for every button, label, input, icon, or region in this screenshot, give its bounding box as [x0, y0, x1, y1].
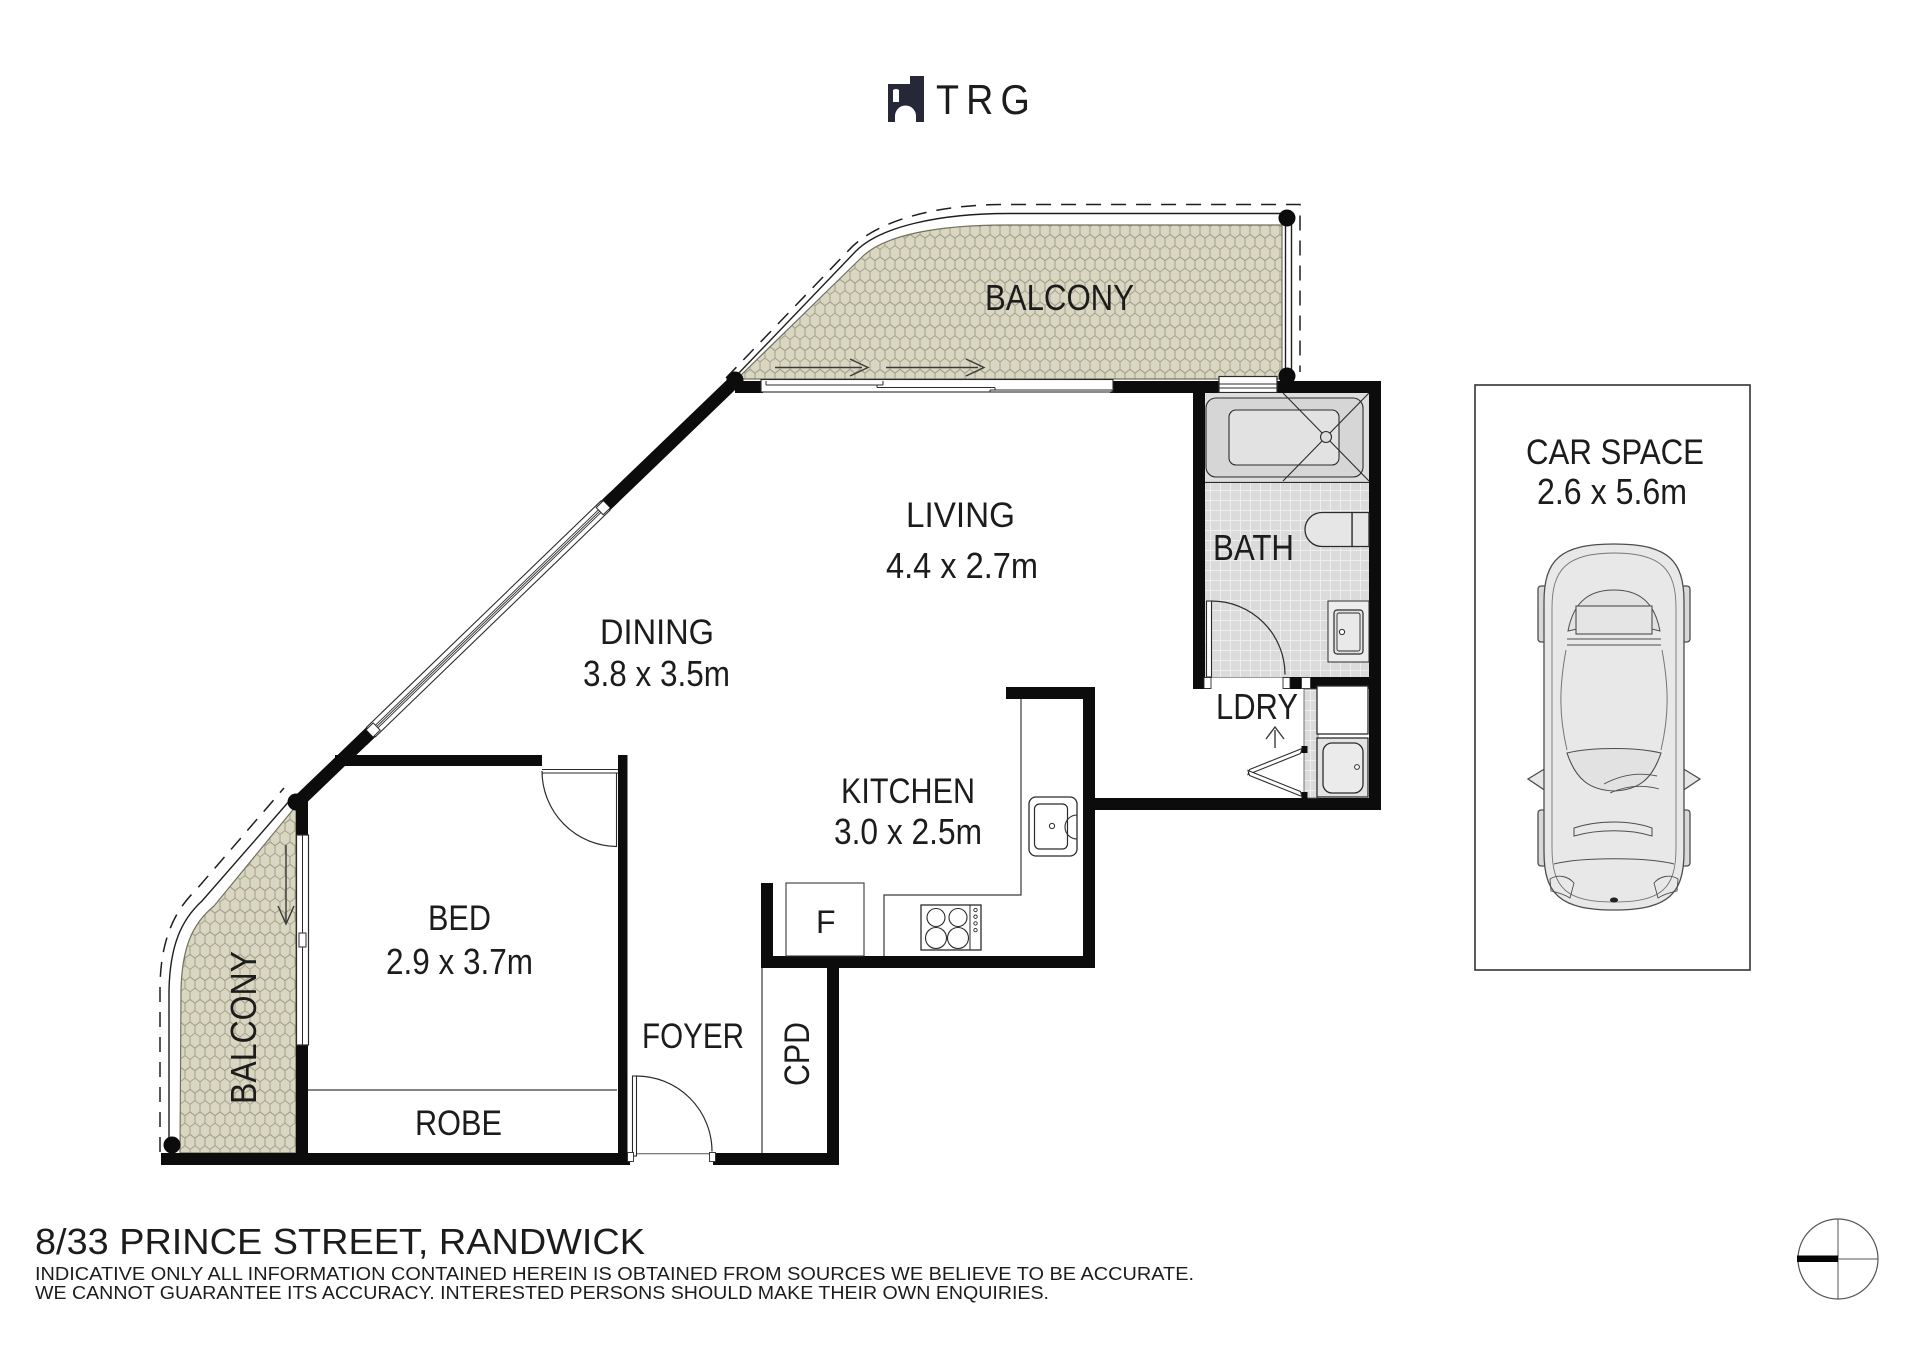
svg-text:F: F — [816, 904, 836, 940]
svg-text:2.9 x 3.7m: 2.9 x 3.7m — [386, 941, 533, 982]
svg-text:BATH: BATH — [1213, 527, 1294, 568]
svg-text:DINING: DINING — [600, 613, 714, 652]
svg-text:2.6 x 5.6m: 2.6 x 5.6m — [1537, 471, 1687, 512]
svg-text:3.8 x 3.5m: 3.8 x 3.5m — [583, 653, 730, 694]
svg-text:8/33 PRINCE STREET, RANDWICK: 8/33 PRINCE STREET, RANDWICK — [35, 1221, 645, 1262]
svg-text:WE CANNOT GUARANTEE ITS ACCURA: WE CANNOT GUARANTEE ITS ACCURACY. INTERE… — [35, 1283, 1049, 1303]
svg-text:BED: BED — [428, 899, 491, 938]
svg-text:4.4 x 2.7m: 4.4 x 2.7m — [886, 545, 1038, 586]
svg-text:BALCONY: BALCONY — [985, 277, 1134, 318]
svg-text:ROBE: ROBE — [415, 1104, 502, 1143]
svg-text:CAR SPACE: CAR SPACE — [1526, 433, 1704, 472]
svg-text:3.0 x 2.5m: 3.0 x 2.5m — [834, 811, 982, 852]
svg-text:INDICATIVE ONLY ALL INFORMATIO: INDICATIVE ONLY ALL INFORMATION CONTAINE… — [35, 1264, 1194, 1284]
svg-text:CPD: CPD — [778, 1022, 817, 1086]
svg-text:LDRY: LDRY — [1216, 686, 1298, 727]
svg-text:KITCHEN: KITCHEN — [841, 772, 975, 811]
svg-text:BALCONY: BALCONY — [223, 951, 264, 1104]
svg-text:FOYER: FOYER — [642, 1017, 744, 1056]
svg-text:TRG: TRG — [936, 76, 1037, 123]
svg-text:LIVING: LIVING — [906, 496, 1015, 535]
